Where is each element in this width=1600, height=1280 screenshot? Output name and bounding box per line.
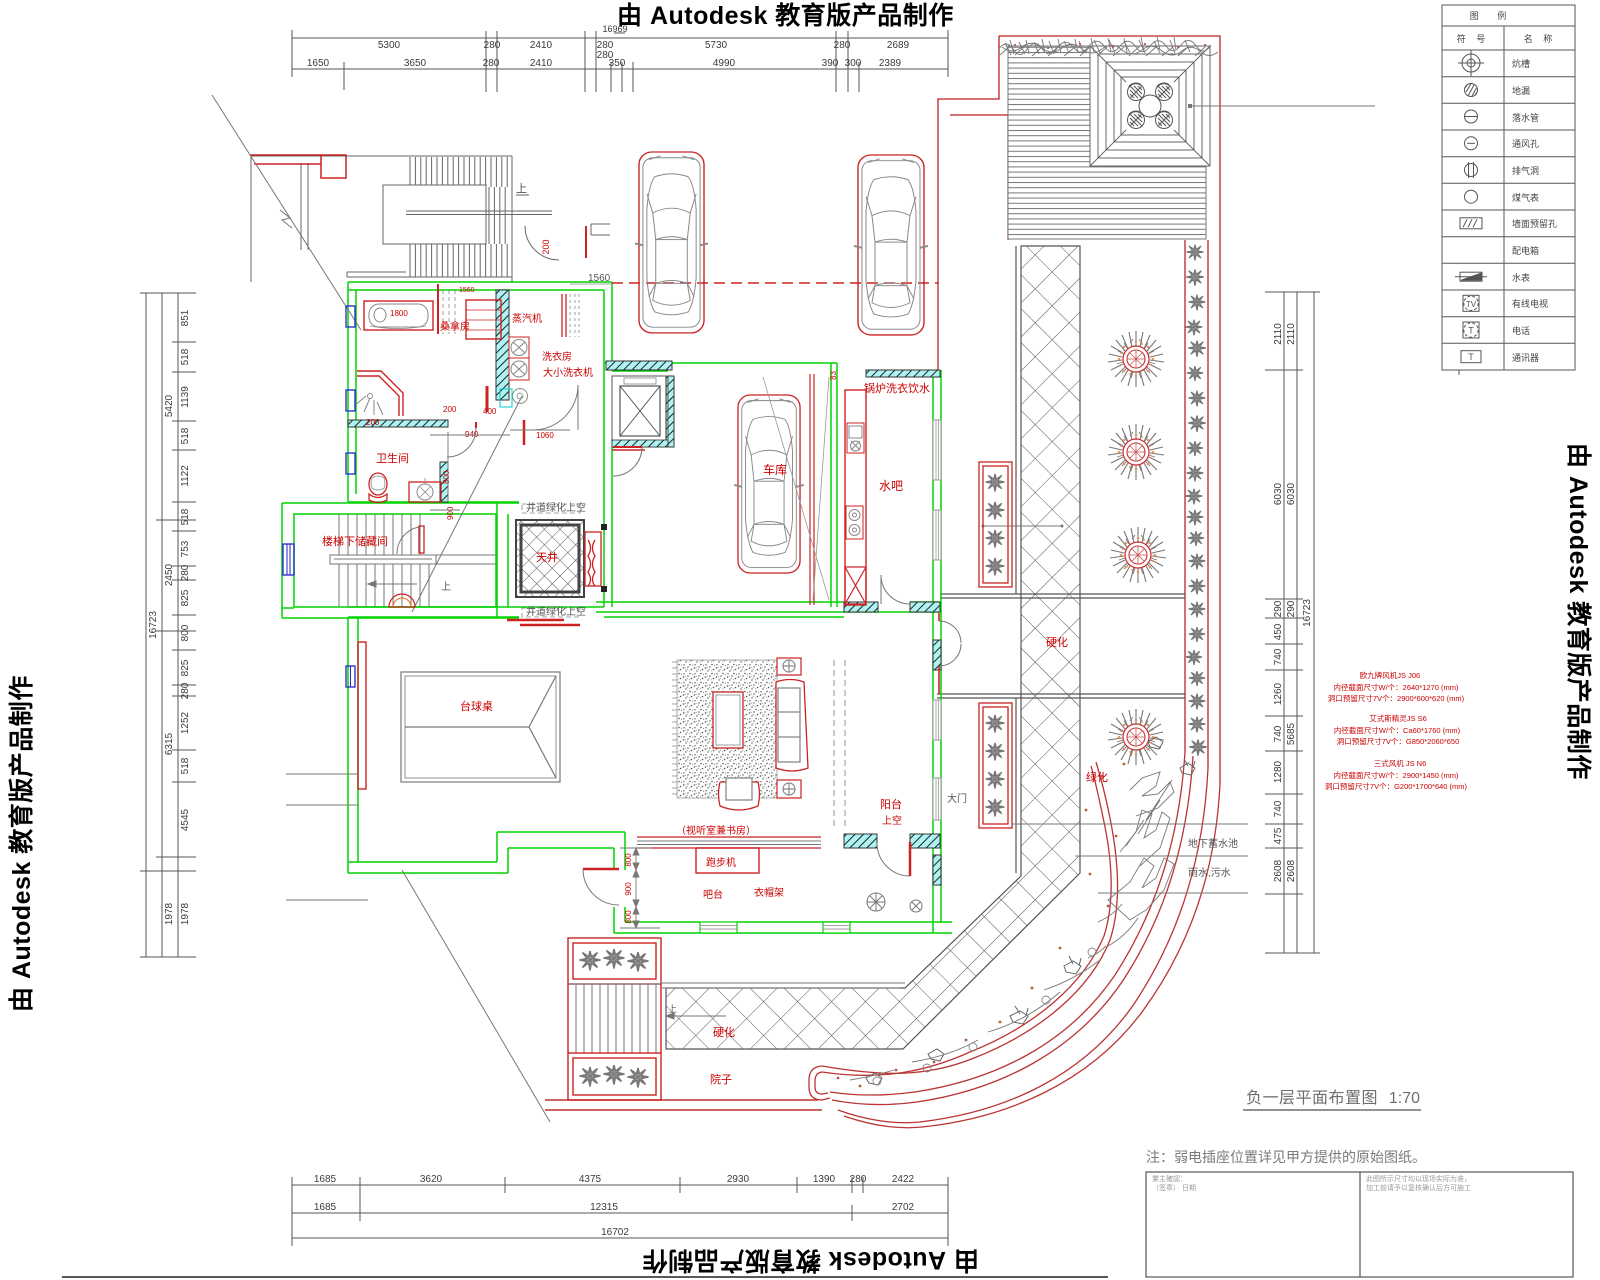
svg-text:2422: 2422: [892, 1174, 915, 1185]
svg-text:390: 390: [822, 58, 839, 69]
svg-text:1280: 1280: [1273, 760, 1284, 783]
svg-text:2608: 2608: [1286, 859, 1297, 882]
svg-text:800: 800: [624, 853, 633, 867]
svg-text:1650: 1650: [307, 58, 330, 69]
svg-text:上: 上: [516, 182, 527, 195]
svg-text:水吧: 水吧: [879, 479, 903, 493]
svg-text:2110: 2110: [1286, 323, 1297, 345]
svg-text:2389: 2389: [879, 58, 902, 69]
svg-text:台球桌: 台球桌: [460, 699, 493, 713]
svg-text:518: 518: [180, 348, 191, 365]
svg-text:加工前请予以复核确认后方可施工: 加工前请予以复核确认后方可施工: [1366, 1183, 1471, 1192]
svg-text:6315: 6315: [164, 732, 175, 755]
svg-text:地漏: 地漏: [1512, 85, 1530, 96]
svg-text:艾式斯精灵JS S6: 艾式斯精灵JS S6: [1369, 713, 1427, 723]
svg-text:350: 350: [609, 58, 626, 69]
svg-text:内径截面尺寸W/个：2900*1450 (mm): 内径截面尺寸W/个：2900*1450 (mm): [1333, 770, 1459, 780]
svg-text:900: 900: [624, 882, 633, 896]
svg-text:电话: 电话: [1512, 325, 1530, 336]
svg-text:825: 825: [180, 659, 191, 676]
svg-text:2930: 2930: [727, 1174, 750, 1185]
svg-text:200: 200: [541, 239, 551, 254]
svg-text:符 号: 符 号: [1457, 33, 1490, 44]
svg-text:1560: 1560: [588, 273, 611, 284]
svg-text:518: 518: [180, 427, 191, 444]
svg-text:1:70: 1:70: [1389, 1090, 1420, 1107]
svg-text:炕槽: 炕槽: [1512, 58, 1530, 69]
svg-text:800: 800: [624, 910, 633, 924]
svg-text:1800: 1800: [390, 309, 408, 318]
svg-text:4375: 4375: [579, 1174, 602, 1185]
svg-text:T: T: [1468, 352, 1474, 362]
svg-text:2702: 2702: [892, 1202, 915, 1213]
svg-text:跑步机: 跑步机: [706, 856, 736, 869]
svg-text:硬化: 硬化: [713, 1025, 735, 1039]
svg-text:内径截面尺寸W/个：Ca60*1760 (mm): 内径截面尺寸W/个：Ca60*1760 (mm): [1334, 725, 1461, 735]
svg-text:煤气表: 煤气表: [1512, 192, 1539, 203]
svg-text:280: 280: [834, 40, 851, 51]
svg-text:1139: 1139: [180, 386, 191, 408]
svg-text:此图所示尺寸均以现场实际为准，: 此图所示尺寸均以现场实际为准，: [1366, 1174, 1471, 1183]
svg-text:蒸汽机: 蒸汽机: [512, 312, 542, 325]
svg-text:280: 280: [180, 564, 191, 581]
svg-text:配电箱: 配电箱: [1512, 245, 1539, 256]
svg-text:洞口预留尺寸7V个：G200*1700*640 (mm): 洞口预留尺寸7V个：G200*1700*640 (mm): [1325, 781, 1468, 791]
svg-text:由 Autodesk 教育版产品制作: 由 Autodesk 教育版产品制作: [7, 675, 36, 1012]
svg-text:200: 200: [443, 405, 457, 414]
svg-text:4990: 4990: [713, 58, 736, 69]
svg-text:车库: 车库: [763, 462, 787, 477]
svg-text:注：弱电插座位置详见甲方提供的原始图纸。: 注：弱电插座位置详见甲方提供的原始图纸。: [1146, 1149, 1426, 1165]
svg-text:有线电视: 有线电视: [1512, 298, 1548, 309]
svg-text:200: 200: [366, 418, 380, 427]
svg-text:欧九牌风机JS J06: 欧九牌风机JS J06: [1360, 670, 1420, 680]
svg-text:绿化: 绿化: [1086, 770, 1108, 784]
svg-text:16702: 16702: [601, 1227, 629, 1238]
svg-text:洞口预留尺寸7V个：G850*2060*650: 洞口预留尺寸7V个：G850*2060*650: [1337, 736, 1460, 746]
svg-text:院子: 院子: [710, 1072, 732, 1086]
svg-text:940: 940: [465, 430, 479, 439]
svg-text:通讯器: 通讯器: [1512, 353, 1539, 363]
svg-text:740: 740: [1273, 648, 1284, 665]
svg-text:518: 518: [180, 508, 191, 525]
svg-text:T: T: [1468, 326, 1474, 336]
svg-text:锅炉洗衣饮水: 锅炉洗衣饮水: [864, 381, 930, 395]
svg-text:雨水,污水: 雨水,污水: [1188, 867, 1231, 879]
svg-text:（签章） 日期: （签章） 日期: [1152, 1183, 1196, 1192]
svg-text:290: 290: [1286, 600, 1297, 617]
svg-text:由 Autodesk 教育版产品制作: 由 Autodesk 教育版产品制作: [642, 1246, 979, 1275]
svg-text:2110: 2110: [1273, 323, 1284, 345]
svg-text:由 Autodesk 教育版产品制作: 由 Autodesk 教育版产品制作: [617, 1, 954, 30]
svg-text:16969: 16969: [602, 24, 627, 34]
svg-text:280: 280: [483, 58, 500, 69]
svg-text:450: 450: [1273, 623, 1284, 640]
svg-text:5730: 5730: [705, 40, 728, 51]
svg-text:阳台: 阳台: [880, 797, 902, 811]
svg-text:300: 300: [845, 58, 862, 69]
svg-text:290: 290: [1273, 600, 1284, 617]
svg-text:5420: 5420: [164, 394, 175, 417]
svg-text:（视听室兼书房）: （视听室兼书房）: [676, 824, 756, 837]
svg-text:400: 400: [483, 407, 497, 416]
svg-text:5300: 5300: [378, 40, 401, 51]
svg-text:衣帽架: 衣帽架: [754, 886, 784, 899]
svg-text:12315: 12315: [590, 1202, 618, 1213]
svg-text:1560: 1560: [459, 287, 475, 294]
svg-text:地下蓄水池: 地下蓄水池: [1188, 837, 1238, 850]
svg-text:排气洞: 排气洞: [1512, 165, 1539, 176]
svg-text:16723: 16723: [148, 611, 159, 639]
svg-text:1685: 1685: [314, 1202, 337, 1213]
svg-text:1260: 1260: [1273, 682, 1284, 705]
svg-text:業主確認：: 業主確認：: [1152, 1174, 1187, 1183]
svg-text:2410: 2410: [530, 40, 553, 51]
svg-text:洗衣房: 洗衣房: [542, 350, 572, 363]
svg-text:1122: 1122: [180, 465, 191, 487]
svg-text:2410: 2410: [530, 58, 553, 69]
svg-text:1685: 1685: [314, 1174, 337, 1185]
svg-text:由 Autodesk 教育版产品制作: 由 Autodesk 教育版产品制作: [1564, 443, 1593, 780]
svg-text:上空: 上空: [882, 814, 902, 827]
svg-text:83: 83: [829, 371, 838, 380]
svg-text:5685: 5685: [1286, 722, 1297, 745]
svg-text:TV: TV: [1466, 300, 1477, 309]
svg-text:上: 上: [441, 581, 451, 593]
svg-text:1978: 1978: [164, 902, 175, 925]
svg-text:3620: 3620: [420, 1174, 443, 1185]
svg-text:740: 740: [1273, 800, 1284, 817]
svg-text:1978: 1978: [180, 902, 191, 925]
svg-text:2689: 2689: [887, 40, 910, 51]
svg-text:2608: 2608: [1273, 859, 1284, 882]
svg-text:475: 475: [1273, 827, 1284, 844]
svg-text:280: 280: [180, 682, 191, 699]
svg-text:井道绿化上空: 井道绿化上空: [526, 605, 586, 618]
svg-text:硬化: 硬化: [1046, 635, 1068, 649]
svg-text:楼梯下储藏间: 楼梯下储藏间: [322, 534, 388, 548]
svg-text:1060: 1060: [536, 431, 554, 440]
svg-text:墙面预留孔: 墙面预留孔: [1512, 218, 1557, 229]
svg-text:6030: 6030: [1286, 482, 1297, 505]
svg-text:280: 280: [850, 1174, 867, 1185]
svg-text:4545: 4545: [180, 808, 191, 831]
svg-text:名 称: 名 称: [1524, 33, 1557, 44]
svg-text:851: 851: [180, 309, 191, 326]
svg-text:落水管: 落水管: [1512, 112, 1539, 123]
svg-text:吧台: 吧台: [703, 888, 723, 901]
svg-text:上: 上: [668, 1004, 677, 1014]
svg-text:800: 800: [442, 470, 451, 484]
svg-text:3650: 3650: [404, 58, 427, 69]
svg-text:6030: 6030: [1273, 482, 1284, 505]
svg-text:卫生间: 卫生间: [376, 451, 409, 465]
svg-text:753: 753: [180, 540, 191, 557]
svg-text:518: 518: [180, 757, 191, 774]
svg-text:740: 740: [1273, 725, 1284, 742]
svg-text:天井: 天井: [536, 550, 558, 564]
svg-text:2450: 2450: [164, 563, 175, 586]
svg-text:大小洗衣机: 大小洗衣机: [543, 366, 593, 379]
svg-text:900: 900: [446, 506, 455, 520]
svg-text:桑拿房: 桑拿房: [440, 320, 470, 333]
svg-text:1252: 1252: [180, 711, 191, 734]
svg-text:1390: 1390: [813, 1174, 836, 1185]
svg-text:三式风机 JS N6: 三式风机 JS N6: [1374, 758, 1427, 768]
svg-text:负一层平面布置图: 负一层平面布置图: [1246, 1089, 1378, 1107]
svg-text:16723: 16723: [1302, 599, 1313, 627]
svg-text:井道绿化上空: 井道绿化上空: [526, 501, 586, 514]
svg-text:通风孔: 通风孔: [1512, 139, 1539, 149]
svg-text:内径截面尺寸W/个：2640*1270 (mm): 内径截面尺寸W/个：2640*1270 (mm): [1333, 682, 1459, 692]
svg-text:水表: 水表: [1512, 272, 1530, 283]
svg-text:800: 800: [180, 624, 191, 641]
svg-text:280: 280: [484, 40, 501, 51]
svg-text:大门: 大门: [947, 792, 967, 805]
svg-text:图 例: 图 例: [1470, 10, 1515, 21]
svg-text:洞口预留尺寸7V个：2900*600*620 (mm): 洞口预留尺寸7V个：2900*600*620 (mm): [1328, 693, 1465, 703]
svg-text:825: 825: [180, 589, 191, 606]
